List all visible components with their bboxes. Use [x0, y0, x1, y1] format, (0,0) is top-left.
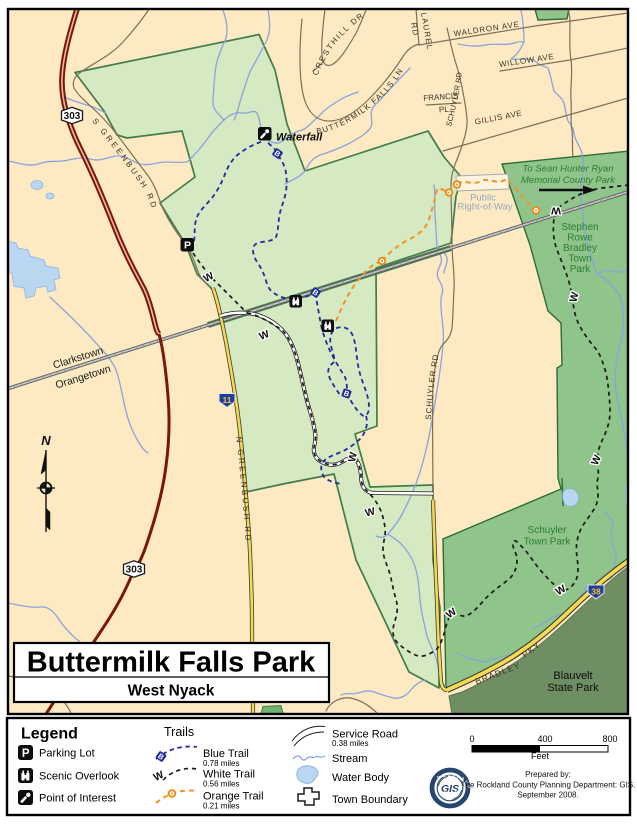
svg-text:W: W	[551, 205, 561, 217]
svg-text:Rowe: Rowe	[567, 233, 593, 244]
svg-text:Trails: Trails	[164, 725, 194, 739]
svg-text:West Nyack: West Nyack	[128, 683, 215, 700]
svg-text:38: 38	[591, 586, 601, 596]
svg-text:Blauvelt: Blauvelt	[553, 670, 592, 682]
svg-text:P: P	[184, 240, 191, 252]
svg-text:Stephen: Stephen	[561, 222, 598, 233]
svg-text:Buttermilk Falls Park: Buttermilk Falls Park	[27, 647, 316, 679]
svg-text:0: 0	[469, 734, 474, 744]
svg-text:Park: Park	[570, 264, 592, 275]
svg-text:0.78 miles: 0.78 miles	[203, 759, 239, 768]
svg-text:Town: Town	[568, 254, 591, 265]
svg-text:0.38 miles: 0.38 miles	[332, 739, 368, 748]
svg-text:PL: PL	[439, 105, 450, 115]
svg-text:Scenic Overlook: Scenic Overlook	[39, 771, 120, 783]
svg-text:State Park: State Park	[547, 682, 599, 694]
svg-text:0.21 miles: 0.21 miles	[203, 802, 239, 811]
svg-text:Town Boundary: Town Boundary	[332, 794, 408, 806]
svg-text:To Sean Hunter Ryan: To Sean Hunter Ryan	[522, 164, 613, 175]
svg-text:Stream: Stream	[332, 753, 367, 765]
svg-text:303: 303	[64, 111, 81, 122]
svg-text:Legend: Legend	[21, 726, 78, 743]
svg-text:Parking Lot: Parking Lot	[39, 748, 95, 760]
svg-text:P: P	[22, 748, 30, 760]
svg-text:400: 400	[537, 734, 552, 744]
svg-text:Right-of-Way: Right-of-Way	[457, 202, 512, 213]
svg-text:Town Park: Town Park	[524, 537, 572, 548]
svg-text:Waterfall: Waterfall	[276, 132, 323, 144]
svg-text:Prepared by:: Prepared by:	[525, 770, 571, 779]
svg-text:11: 11	[223, 395, 232, 405]
svg-text:Feet: Feet	[531, 751, 550, 761]
svg-text:Water Body: Water Body	[332, 772, 390, 784]
svg-text:Point of Interest: Point of Interest	[39, 793, 116, 805]
svg-text:N: N	[41, 433, 51, 448]
svg-text:September 2008.: September 2008.	[517, 791, 578, 800]
svg-text:303: 303	[126, 565, 143, 576]
svg-text:0.56 miles: 0.56 miles	[203, 780, 239, 789]
svg-text:The Rockland County Planning D: The Rockland County Planning Department:…	[461, 781, 636, 790]
svg-text:Memorial County Park: Memorial County Park	[521, 175, 616, 186]
svg-text:Schuyler: Schuyler	[528, 525, 568, 536]
svg-text:Bradley: Bradley	[563, 243, 597, 254]
svg-text:800: 800	[602, 734, 617, 744]
